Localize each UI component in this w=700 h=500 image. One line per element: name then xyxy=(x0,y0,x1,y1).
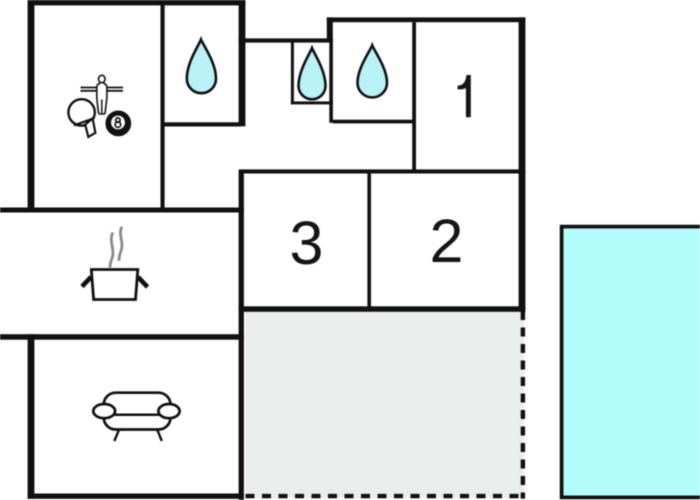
svg-text:2: 2 xyxy=(430,207,464,275)
svg-text:3: 3 xyxy=(290,209,324,277)
